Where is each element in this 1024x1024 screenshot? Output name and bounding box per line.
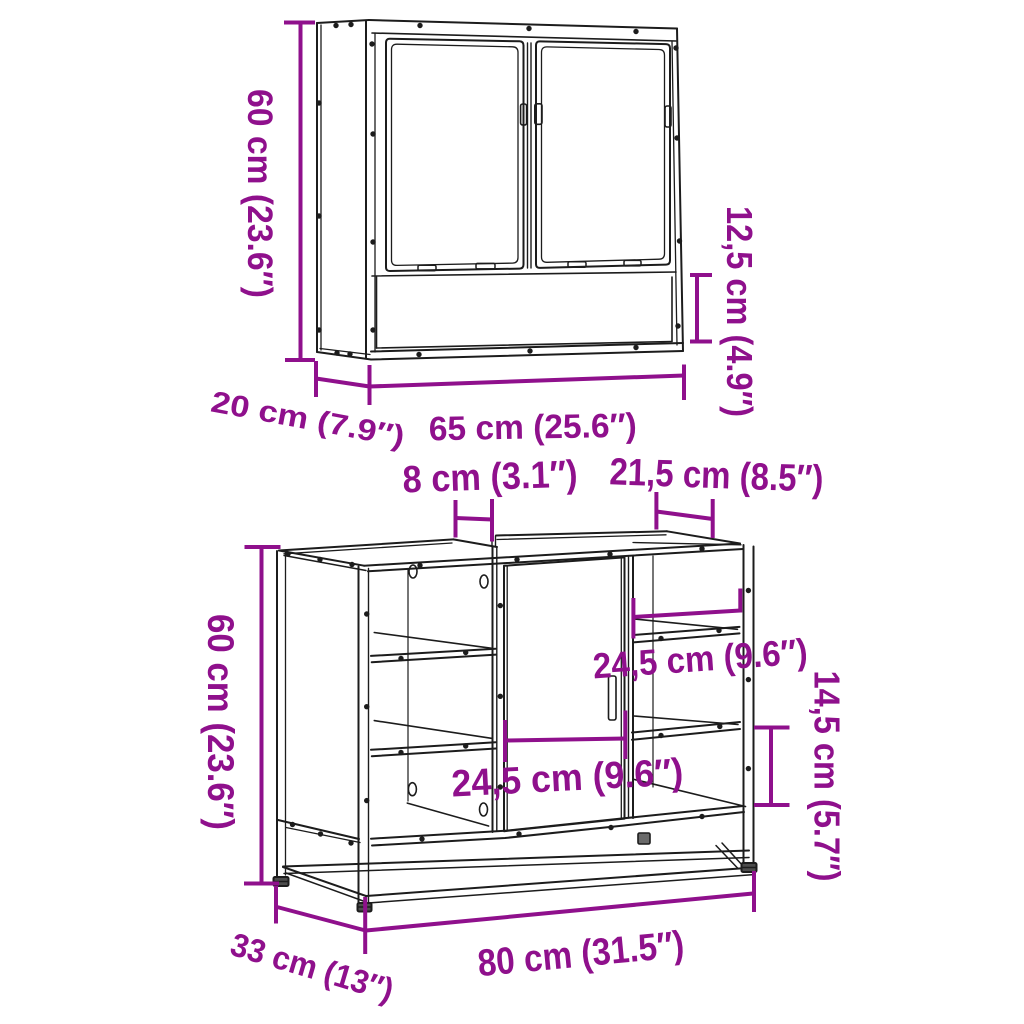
svg-text:60 cm (23.6″): 60 cm (23.6″) bbox=[200, 614, 241, 830]
svg-text:80 cm (31.5″): 80 cm (31.5″) bbox=[476, 924, 686, 985]
svg-text:21,5 cm (8.5″): 21,5 cm (8.5″) bbox=[609, 451, 824, 500]
svg-text:20 cm (7.9″): 20 cm (7.9″) bbox=[208, 386, 407, 454]
svg-text:60 cm (23.6″): 60 cm (23.6″) bbox=[240, 89, 280, 298]
svg-text:8 cm (3.1″): 8 cm (3.1″) bbox=[402, 453, 578, 501]
svg-text:14,5 cm (5.7″): 14,5 cm (5.7″) bbox=[807, 671, 848, 882]
svg-text:12,5 cm (4.9″): 12,5 cm (4.9″) bbox=[719, 206, 760, 417]
svg-text:24,5 cm (9.6″): 24,5 cm (9.6″) bbox=[450, 751, 684, 805]
svg-text:33 cm (13″): 33 cm (13″) bbox=[226, 925, 398, 1008]
svg-text:65 cm (25.6″): 65 cm (25.6″) bbox=[428, 407, 637, 449]
